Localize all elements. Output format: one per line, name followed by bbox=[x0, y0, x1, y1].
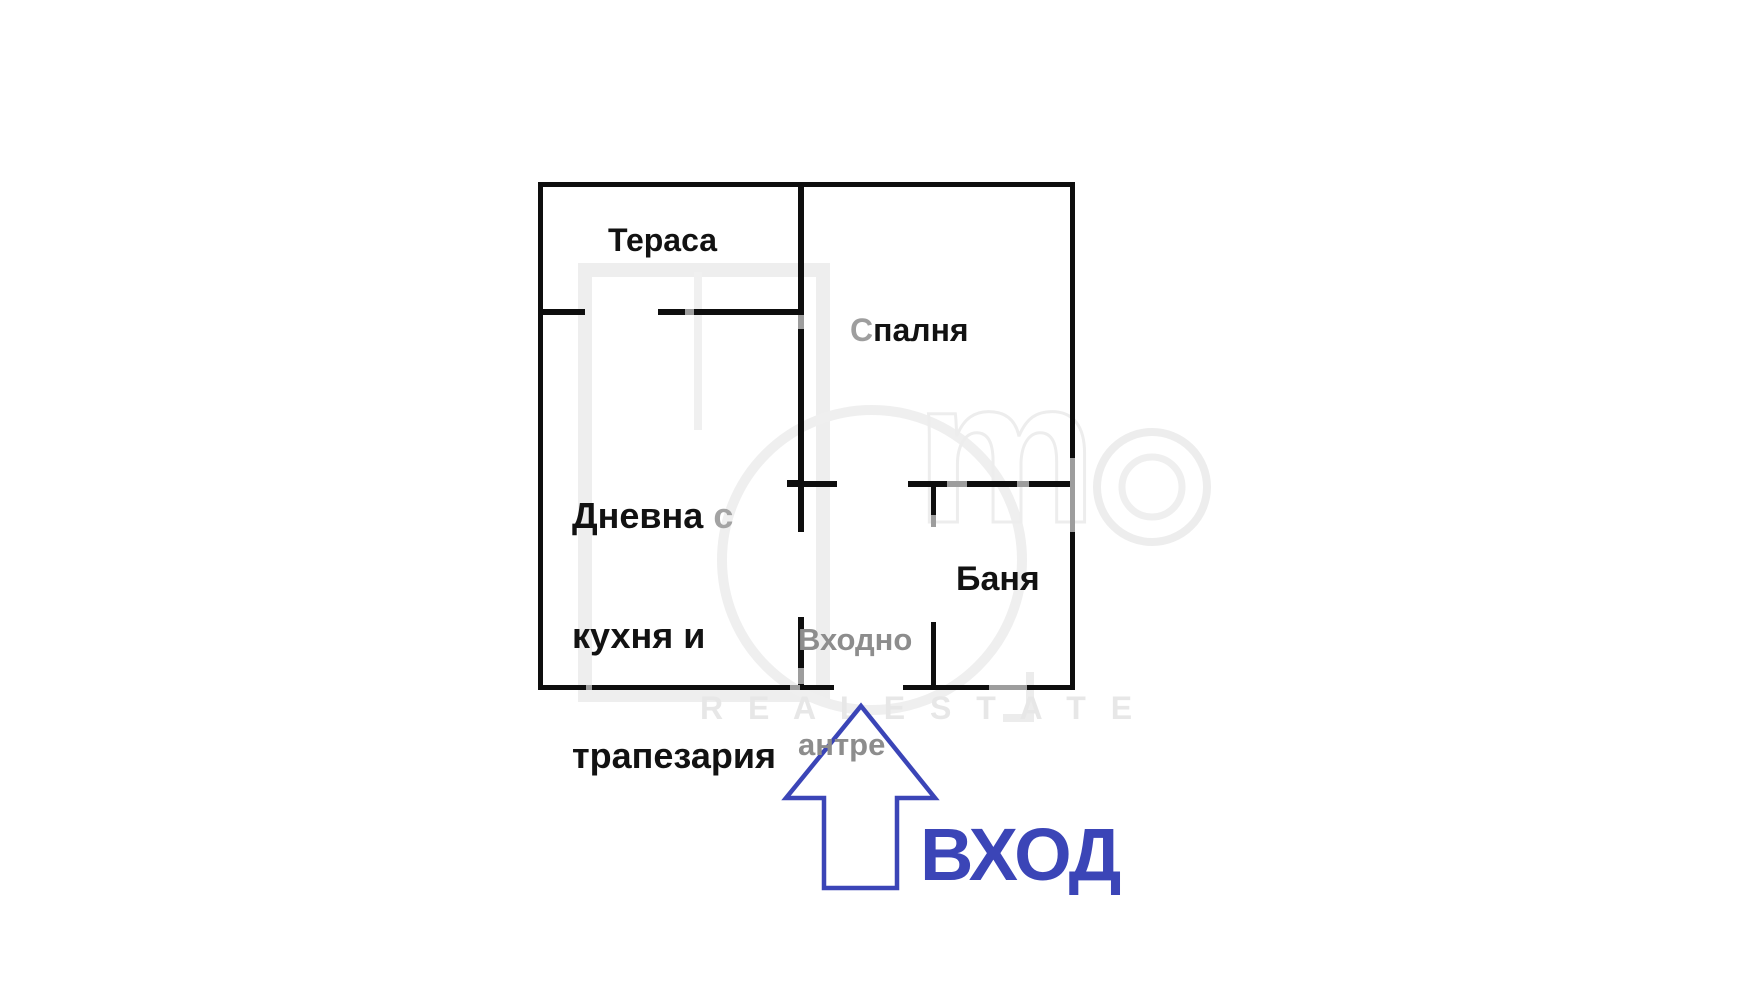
bedroom-label-faded-letter: С bbox=[850, 312, 873, 348]
watermark-overlap-patch bbox=[798, 315, 804, 329]
living-room-label: Дневна с кухня и трапезария bbox=[572, 416, 776, 856]
wall-outer-top bbox=[538, 182, 1075, 187]
living-label-line3: трапезария bbox=[572, 736, 776, 776]
watermark-overlap-patch bbox=[685, 309, 694, 315]
living-label-line2: кухня и bbox=[572, 616, 776, 656]
wall-bedroom-left bbox=[798, 481, 837, 487]
entrance-arrow-svg bbox=[0, 0, 1751, 1000]
wall-outer-left bbox=[538, 182, 543, 690]
wall-junction-tick bbox=[787, 480, 800, 487]
floor-plan-canvas: m R E A L E S T A T E Тераса Спалня Днев… bbox=[0, 0, 1751, 1000]
watermark-overlap-patch bbox=[1070, 458, 1075, 532]
terrace-room-label: Тераса bbox=[608, 222, 717, 259]
wall-bath-lower bbox=[931, 622, 936, 690]
living-label-line1: Дневна с bbox=[572, 496, 776, 536]
hall-label-line2: антре bbox=[798, 727, 912, 762]
watermark-overlap-patch bbox=[947, 481, 967, 487]
living-label-line1-faded-letter: с bbox=[713, 495, 733, 536]
watermark-overlap-patch bbox=[931, 515, 936, 527]
wall-outer-right bbox=[1070, 182, 1075, 690]
wall-terrace-right bbox=[658, 309, 803, 315]
entrance-label: ВХОД bbox=[920, 812, 1119, 897]
watermark-overlap-patch bbox=[1017, 481, 1029, 487]
hall-label-line1: Входно bbox=[798, 622, 912, 657]
watermark-overlap-patch bbox=[989, 685, 1027, 690]
living-label-line1-word: Дневна bbox=[572, 495, 713, 536]
bathroom-label: Баня bbox=[956, 560, 1040, 599]
bedroom-label-text: палня bbox=[873, 312, 968, 348]
wall-terrace-left bbox=[538, 309, 585, 315]
entry-hall-label: Входно антре bbox=[798, 552, 912, 832]
bedroom-room-label: Спалня bbox=[850, 312, 969, 349]
